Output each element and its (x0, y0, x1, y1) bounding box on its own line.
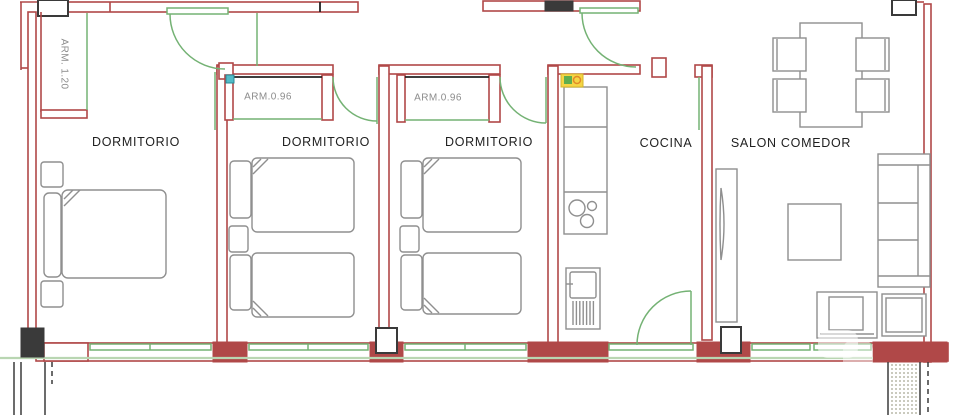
pillar-top-right (892, 0, 916, 15)
yellow-boiler-marker-kitchen (561, 74, 583, 87)
bedroom-3-bed-2 (401, 253, 521, 314)
dining-chair-left-top (773, 38, 806, 71)
bedroom-1-nightstand-bottom (41, 281, 63, 307)
bedroom-2-bed-2 (230, 253, 354, 317)
window-bedroom-2 (249, 344, 368, 350)
door-kitchen-terrace (609, 291, 693, 350)
closet-label-arm-120: ARM. 1.20 (59, 39, 70, 90)
door-kitchen-hall (580, 8, 638, 67)
plan-linework (0, 0, 960, 415)
pillar-bottom-living (721, 327, 741, 353)
bedroom-1-nightstand-top (41, 162, 63, 187)
bedroom-3-nightstand (400, 226, 419, 252)
room-label-bedroom-2: DORMITORIO (282, 135, 370, 149)
room-label-bedroom-3: DORMITORIO (445, 135, 533, 149)
window-living-room-left (752, 344, 810, 350)
pillar-top-center (545, 1, 573, 11)
bedroom-2-nightstand (229, 226, 248, 252)
pillar-top-left (38, 0, 68, 16)
entry-door (167, 8, 228, 69)
kitchen-washer (566, 268, 600, 329)
apartment-floor-plan: ARM. 1.20 DORMITORIO ARM.0.96 DORMITORIO… (0, 0, 960, 415)
stair-shaft-hatch (890, 363, 919, 415)
door-bedroom-2 (333, 77, 377, 124)
room-label-kitchen: COCINA (640, 136, 693, 150)
dining-chair-right-top (856, 38, 889, 71)
dining-chair-right-bottom (856, 79, 889, 112)
party-wall-lines-left (14, 362, 52, 415)
pillar-bottom-left (21, 328, 44, 357)
dining-chair-left-bottom (773, 79, 806, 112)
room-label-bedroom-1: DORMITORIO (92, 135, 180, 149)
window-bedroom-1 (90, 344, 211, 350)
tv-cabinet (716, 169, 737, 322)
closet-label-bedroom-2: ARM.0.96 (244, 92, 292, 103)
sofa (878, 154, 930, 287)
window-bedroom-3 (405, 344, 526, 350)
dining-table (800, 23, 862, 127)
watermark-blob (845, 362, 871, 384)
cyan-marker-closet-bedroom-2 (226, 75, 234, 83)
room-label-living-dining: SALON COMEDOR (731, 136, 851, 150)
bedroom-1-double-bed (44, 190, 166, 278)
side-table (882, 294, 926, 336)
bedroom-2-bed-1 (230, 158, 354, 232)
closet-label-bedroom-3: ARM.0.96 (414, 93, 462, 104)
pillar-bottom-center (376, 328, 397, 353)
door-bedroom-3 (500, 77, 546, 123)
bedroom-3-bed-1 (401, 158, 521, 232)
coffee-table (788, 204, 841, 260)
